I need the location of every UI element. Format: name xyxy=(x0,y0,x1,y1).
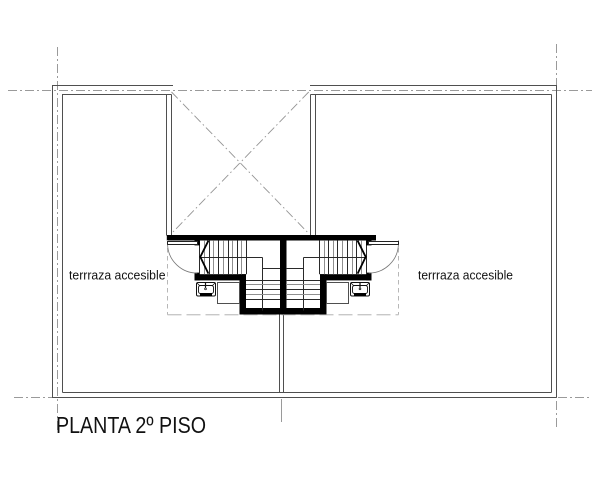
svg-text:terrraza accesible: terrraza accesible xyxy=(418,267,513,282)
svg-text:PLANTA 2º PISO: PLANTA 2º PISO xyxy=(56,412,206,438)
svg-text:terrraza accesible: terrraza accesible xyxy=(69,267,166,282)
